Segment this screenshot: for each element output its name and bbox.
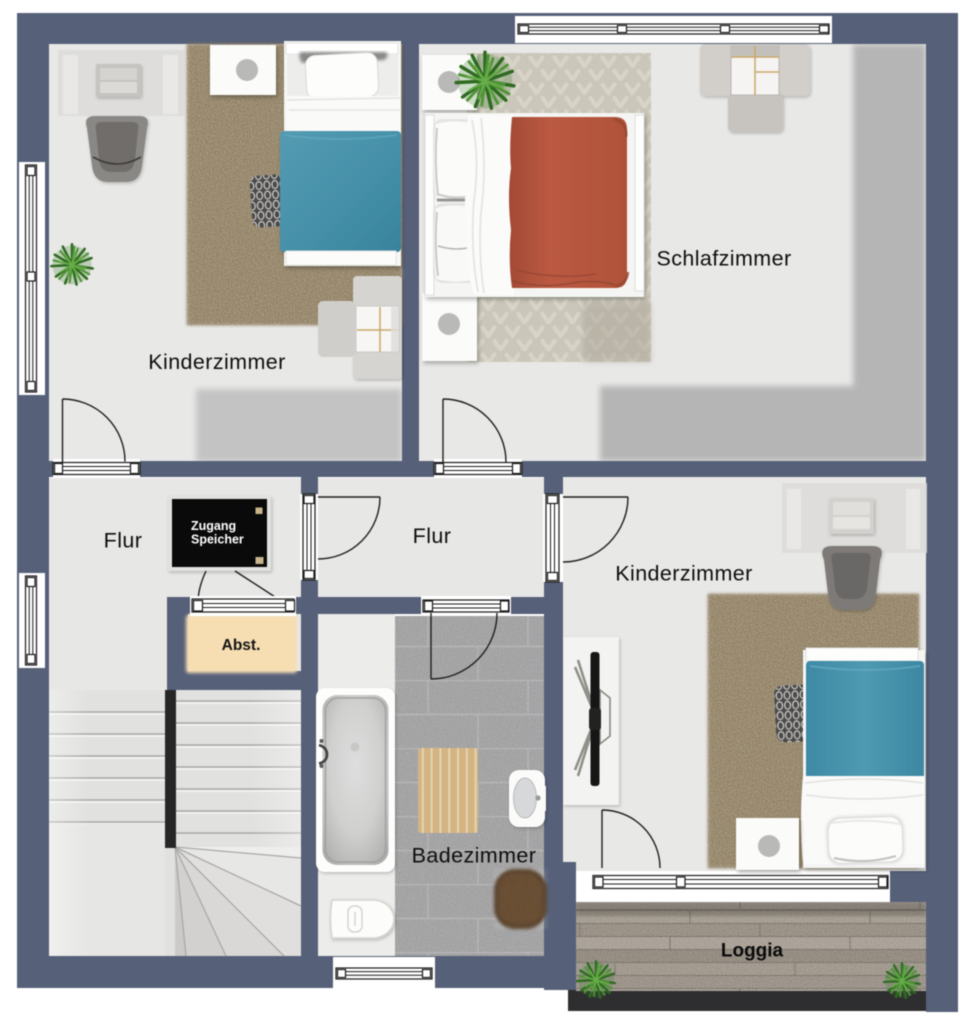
svg-text:Speicher: Speicher xyxy=(191,533,244,547)
svg-text:Kinderzimmer: Kinderzimmer xyxy=(148,350,285,374)
svg-text:Loggia: Loggia xyxy=(721,941,784,962)
svg-text:Schlafzimmer: Schlafzimmer xyxy=(656,247,791,271)
svg-text:Abst.: Abst. xyxy=(222,637,261,654)
svg-text:Kinderzimmer: Kinderzimmer xyxy=(615,562,752,586)
svg-text:Flur: Flur xyxy=(104,529,143,553)
svg-text:Badezimmer: Badezimmer xyxy=(412,844,537,868)
svg-text:Zugang: Zugang xyxy=(191,519,236,533)
svg-text:Flur: Flur xyxy=(413,524,452,548)
